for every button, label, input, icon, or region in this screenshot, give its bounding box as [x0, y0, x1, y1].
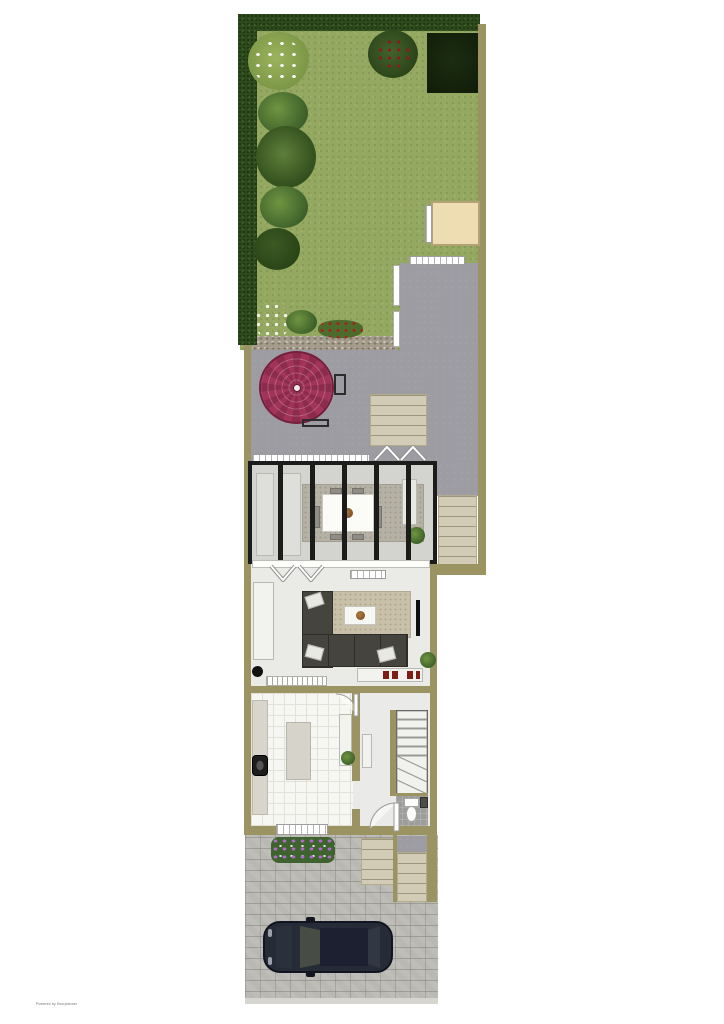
parasol-pole: [293, 384, 301, 392]
living-plant: [420, 652, 436, 668]
hall-console: [362, 734, 372, 768]
sideboard-decor-2: [407, 671, 420, 679]
berry-dots: [376, 38, 410, 70]
topiary-bush: [254, 228, 300, 270]
driveway-edge: [245, 998, 438, 1004]
garden-fence-vertical-2: [393, 311, 400, 347]
living-wall-right: [430, 564, 437, 835]
terrace-door-icon: [372, 445, 428, 462]
side-path: [400, 263, 478, 352]
terrace-steps: [370, 394, 427, 446]
coffee-table-decor: [356, 611, 365, 620]
exterior-stairs: [438, 495, 477, 565]
bed-bush-green: [286, 310, 317, 334]
garden-shed: [431, 201, 480, 246]
floor-plan: Powered by floorplanner: [0, 0, 724, 1024]
boundary-wall-right: [478, 24, 486, 565]
cooktop: [252, 755, 268, 776]
kitchen-door-icon: [334, 693, 359, 718]
roof-beam-3: [342, 465, 347, 560]
stair-enclosure-wall: [437, 564, 486, 575]
shed-door: [425, 205, 432, 243]
hedge-top: [238, 14, 480, 31]
palm-plant: [256, 126, 316, 188]
sideboard-decor-1: [383, 671, 401, 679]
garden-fence-horizontal: [409, 256, 465, 265]
entry-parapet-left: [393, 835, 397, 902]
dining-chair-bottom-1: [330, 534, 342, 540]
entry-steps: [397, 852, 427, 902]
entry-parapet-right: [427, 835, 437, 902]
staircase: [396, 710, 428, 796]
roof-beam-4: [374, 465, 379, 560]
tv: [416, 600, 420, 636]
wall-cabinet: [253, 582, 274, 660]
bed-flowers-red: [318, 320, 363, 338]
terrace-chair: [334, 374, 346, 395]
roof-beam-2: [310, 465, 315, 560]
exterior-stair-landing: [437, 462, 478, 496]
entry-landing: [397, 836, 427, 852]
kitchen-plant: [341, 751, 355, 765]
fern-plant-2: [260, 186, 308, 228]
flower-bush-blooms: [252, 38, 304, 86]
dining-chair-bottom-2: [352, 534, 364, 540]
garden-fence-vertical-1: [393, 265, 400, 306]
living-kitchen-wall: [244, 686, 437, 693]
roof-beam-1: [278, 465, 283, 560]
bed-flowers-white: [254, 302, 290, 340]
pond: [427, 33, 478, 93]
radiator: [266, 676, 327, 686]
living-door-icon: [268, 564, 328, 582]
wc-sink: [420, 797, 428, 808]
kitchen-hall-wall-lower: [352, 809, 360, 826]
car: [262, 915, 394, 979]
living-window: [350, 570, 386, 579]
left-garden-wall: [244, 345, 251, 835]
roof-window-2: [282, 473, 301, 556]
flower-bed: [271, 837, 335, 863]
toilet-bowl: [406, 806, 417, 822]
entry-side-steps: [361, 838, 394, 885]
kitchen-french-window: [276, 824, 328, 835]
roof-window-1: [256, 473, 274, 556]
watermark: Powered by floorplanner: [36, 1002, 77, 1006]
terrace-bench: [302, 419, 329, 427]
speaker-dot: [252, 666, 263, 677]
front-door-icon: [368, 801, 400, 833]
roof-beam-5: [406, 465, 411, 560]
front-wall: [244, 826, 437, 835]
kitchen-island: [286, 722, 311, 780]
